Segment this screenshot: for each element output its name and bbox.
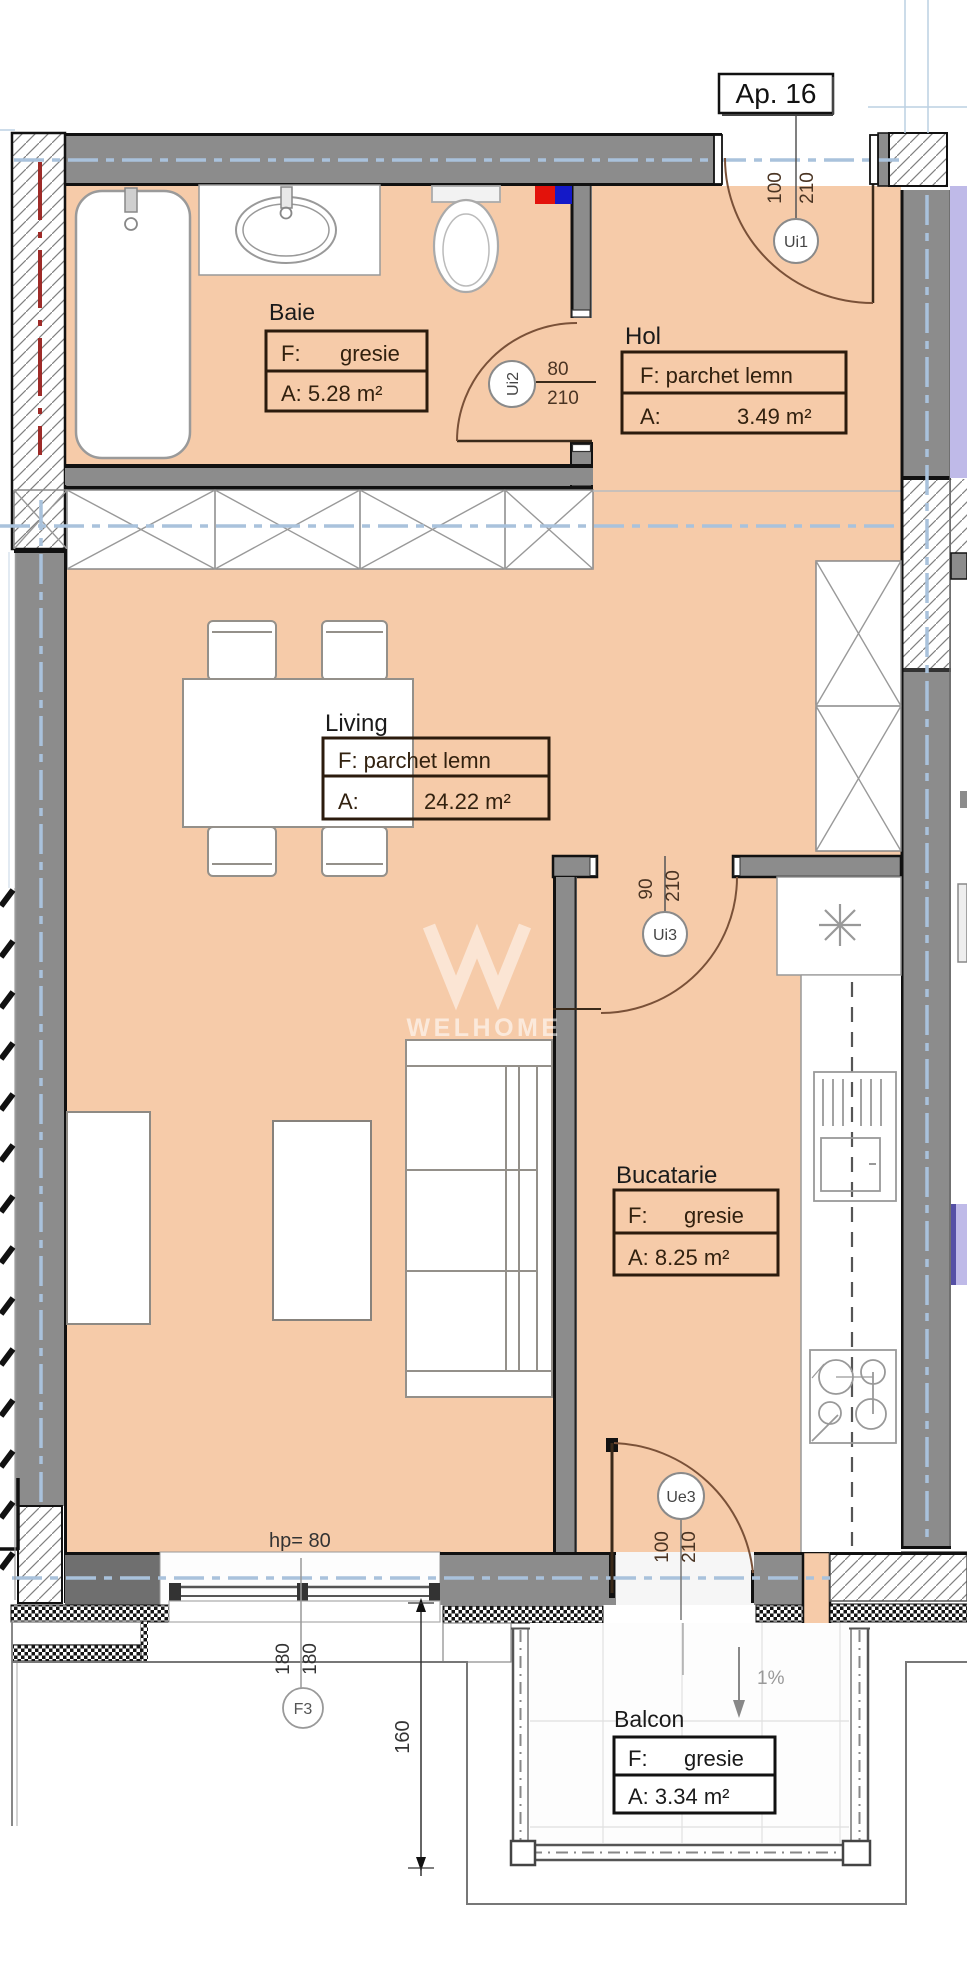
svg-text:hp= 80: hp= 80 xyxy=(269,1530,331,1552)
svg-text:Ap. 16: Ap. 16 xyxy=(736,78,817,109)
svg-text:gresie: gresie xyxy=(340,341,400,366)
svg-text:Balcon: Balcon xyxy=(614,1706,684,1732)
svg-text:3.49 m²: 3.49 m² xyxy=(737,404,812,429)
svg-text:100: 100 xyxy=(652,1531,673,1563)
svg-text:gresie: gresie xyxy=(684,1203,744,1228)
svg-text:F:: F: xyxy=(281,341,301,366)
svg-text:90: 90 xyxy=(636,878,657,899)
svg-text:A:: A: xyxy=(338,789,359,814)
svg-text:WELHOME: WELHOME xyxy=(406,1014,561,1042)
svg-text:100: 100 xyxy=(765,172,786,204)
svg-text:F: parchet lemn: F: parchet lemn xyxy=(640,363,793,388)
svg-text:A: 5.28 m²: A: 5.28 m² xyxy=(281,381,382,406)
svg-text:1%: 1% xyxy=(757,1668,785,1689)
svg-text:gresie: gresie xyxy=(684,1746,744,1771)
svg-text:Ui3: Ui3 xyxy=(653,927,677,944)
svg-text:Baie: Baie xyxy=(269,299,315,325)
svg-text:A:: A: xyxy=(640,404,661,429)
svg-text:Hol: Hol xyxy=(625,323,661,350)
svg-text:210: 210 xyxy=(663,870,684,902)
svg-text:180: 180 xyxy=(273,1643,294,1675)
svg-text:Bucatarie: Bucatarie xyxy=(616,1162,717,1189)
svg-text:F:: F: xyxy=(628,1203,648,1228)
svg-text:24.22 m²: 24.22 m² xyxy=(424,789,511,814)
svg-text:A: 3.34 m²: A: 3.34 m² xyxy=(628,1784,729,1809)
svg-text:210: 210 xyxy=(679,1531,700,1563)
svg-text:F: parchet lemn: F: parchet lemn xyxy=(338,748,491,773)
svg-text:F:: F: xyxy=(628,1746,648,1771)
svg-text:A: 8.25 m²: A: 8.25 m² xyxy=(628,1245,729,1270)
svg-text:Ui2: Ui2 xyxy=(505,372,522,396)
svg-text:Ui1: Ui1 xyxy=(784,234,808,251)
svg-text:210: 210 xyxy=(797,172,818,204)
svg-text:160: 160 xyxy=(392,1720,414,1753)
svg-text:180: 180 xyxy=(300,1643,321,1675)
svg-text:80: 80 xyxy=(547,359,568,380)
svg-text:210: 210 xyxy=(547,388,579,409)
svg-text:Ue3: Ue3 xyxy=(666,1489,695,1506)
svg-text:F3: F3 xyxy=(294,1701,313,1718)
svg-text:Living: Living xyxy=(325,710,388,737)
